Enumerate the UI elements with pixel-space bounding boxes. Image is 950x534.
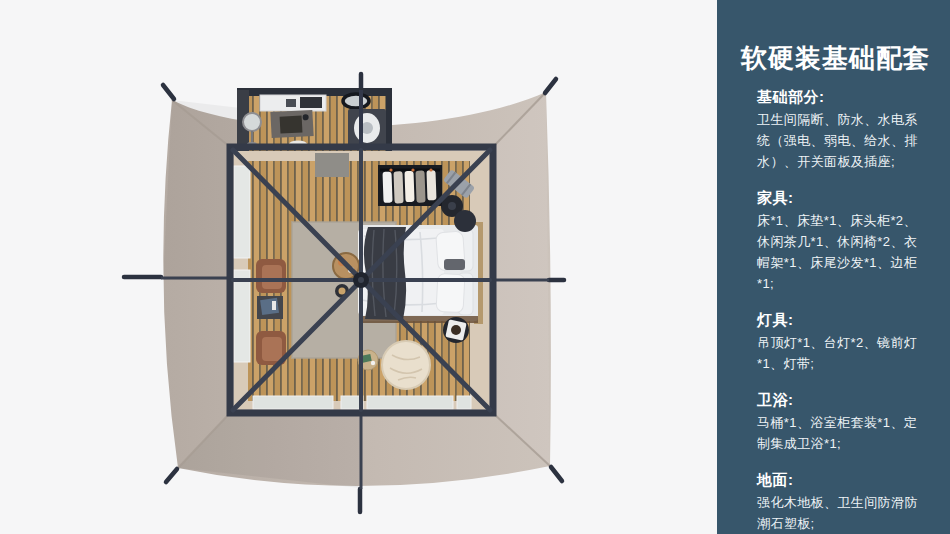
- section-heading: 基础部分:: [757, 88, 930, 107]
- section-heading: 家具:: [757, 189, 930, 208]
- door-mat: [315, 153, 349, 177]
- section-flooring: 地面: 强化木地板、卫生间防滑防潮石塑板;: [757, 471, 930, 534]
- sidebar-title: 软硬装基础配套: [741, 44, 932, 74]
- section-lighting: 灯具: 吊顶灯*1、台灯*2、镜前灯*1、灯带;: [757, 311, 930, 374]
- section-basics: 基础部分: 卫生间隔断、防水、水电系统（强电、弱电、给水、排水）、开关面板及插座…: [757, 88, 930, 172]
- bathroom-vanity: [260, 95, 326, 111]
- section-body: 马桶*1、浴室柜套装*1、定制集成卫浴*1;: [757, 412, 930, 454]
- section-heading: 卫浴:: [757, 391, 930, 410]
- section-bathroom: 卫浴: 马桶*1、浴室柜套装*1、定制集成卫浴*1;: [757, 391, 930, 454]
- spec-sections: 基础部分: 卫生间隔断、防水、水电系统（强电、弱电、给水、排水）、开关面板及插座…: [741, 88, 932, 534]
- slide: 软硬装基础配套 基础部分: 卫生间隔断、防水、水电系统（强电、弱电、给水、排水）…: [0, 0, 950, 534]
- shower-unit: [348, 109, 386, 147]
- bathroom-desk: [270, 110, 313, 138]
- floorplan-image: [0, 0, 717, 534]
- section-body: 床*1、床垫*1、床头柜*2、休闲茶几*1、休闲椅*2、衣帽架*1、床尾沙发*1…: [757, 210, 930, 294]
- section-heading: 地面:: [757, 471, 930, 490]
- section-body: 吊顶灯*1、台灯*2、镜前灯*1、灯带;: [757, 332, 930, 374]
- round-mirror: [343, 94, 369, 108]
- leisure-chair-1: [256, 259, 286, 293]
- spec-sidebar: 软硬装基础配套 基础部分: 卫生间隔断、防水、水电系统（强电、弱电、给水、排水）…: [717, 0, 950, 534]
- section-furniture: 家具: 床*1、床垫*1、床头柜*2、休闲茶几*1、休闲椅*2、衣帽架*1、床尾…: [757, 189, 930, 294]
- clothes-rack: [378, 165, 442, 206]
- section-body: 卫生间隔断、防水、水电系统（强电、弱电、给水、排水）、开关面板及插座;: [757, 109, 930, 172]
- section-body: 强化木地板、卫生间防滑防潮石塑板;: [757, 492, 930, 534]
- side-table-tray: [443, 317, 469, 343]
- bed: [358, 222, 483, 324]
- room-frame: [230, 147, 493, 413]
- pouf: [382, 341, 430, 389]
- chair-side-table: [257, 296, 283, 319]
- section-heading: 灯具:: [757, 311, 930, 330]
